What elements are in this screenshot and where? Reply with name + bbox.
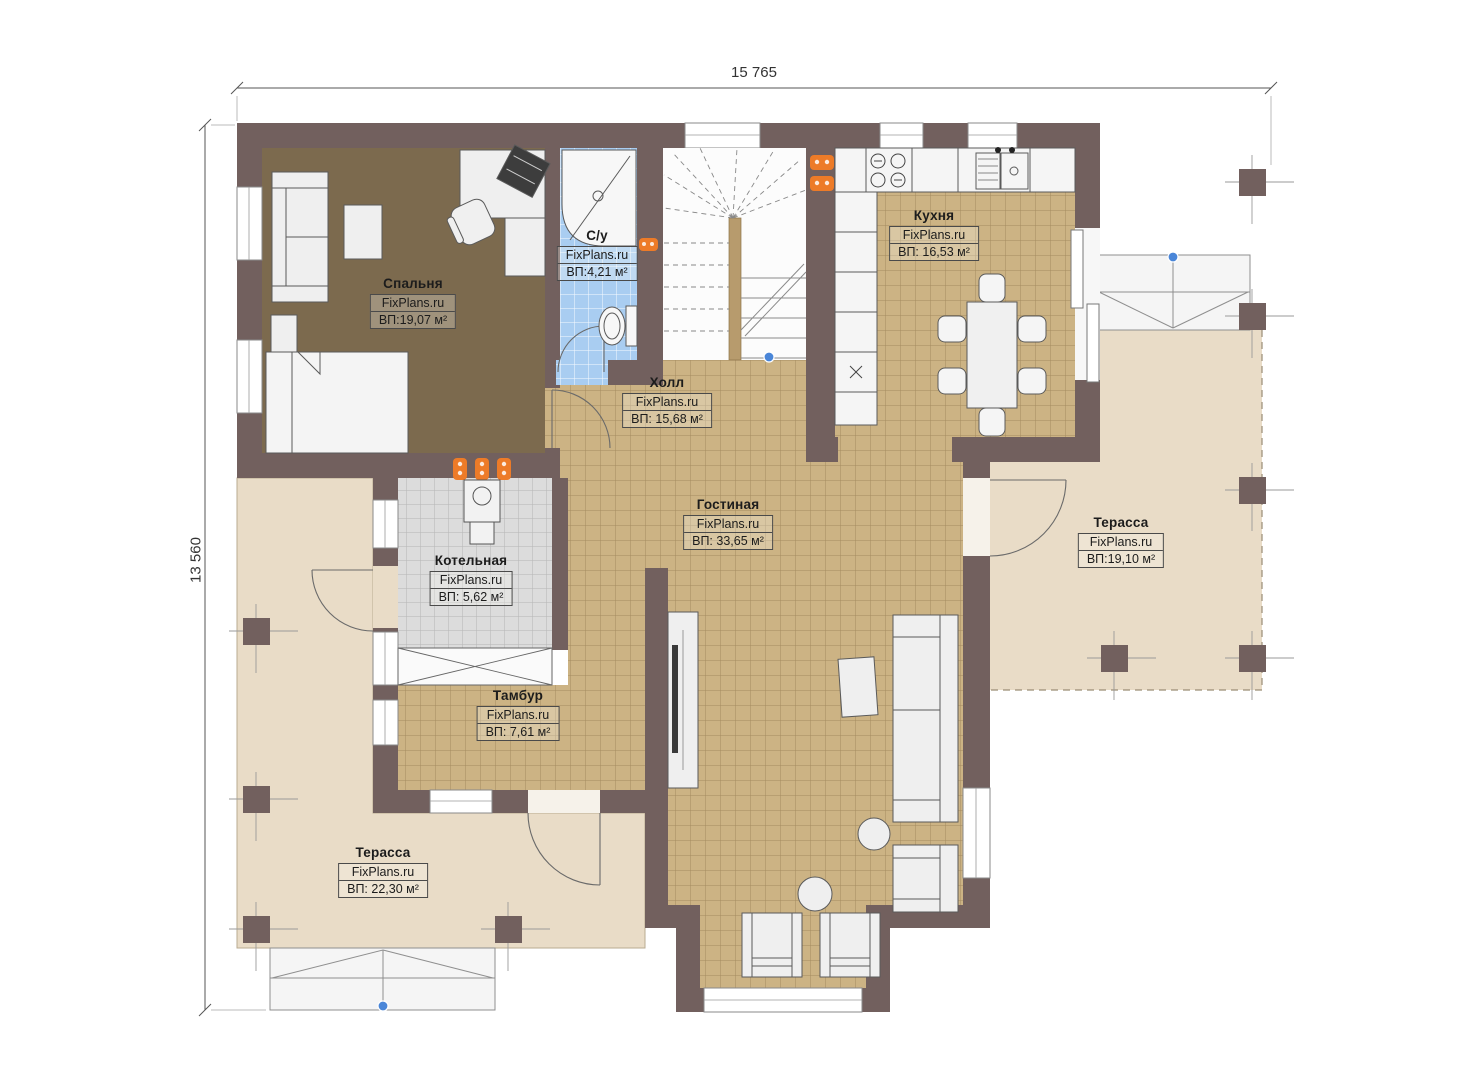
watermark: FixPlans.ru: [684, 516, 772, 533]
watermark: FixPlans.ru: [558, 247, 637, 264]
kitchen-counter-left: [835, 192, 877, 425]
room-label-kitchen: Кухня FixPlans.ru ВП: 16,53 м²: [889, 208, 979, 261]
vestibule-window-1: [373, 632, 398, 685]
floor-plan-page: 15 765 13 560 Спальня FixPlans.ru ВП:19,…: [0, 0, 1474, 1080]
coffee-table: [344, 205, 382, 259]
kitchen-window-2: [968, 123, 1017, 148]
corridor-floor: [568, 478, 645, 685]
room-label-terrace-right: Терасса FixPlans.ru ВП:19,10 м²: [1078, 515, 1164, 568]
room-label-living: Гостиная FixPlans.ru ВП: 33,65 м²: [683, 497, 773, 550]
corridor-living-opening: [645, 478, 668, 568]
toilet: [599, 306, 637, 346]
watermark: FixPlans.ru: [339, 864, 427, 881]
bedroom-window-upper: [237, 187, 262, 260]
sofa-small: [893, 845, 958, 912]
watermark: FixPlans.ru: [478, 707, 559, 724]
room-label-terrace-left: Терасса FixPlans.ru ВП: 22,30 м²: [338, 845, 428, 898]
room-label-hall: Холл FixPlans.ru ВП: 15,68 м²: [622, 375, 712, 428]
tv-stand: [668, 612, 698, 788]
watermark: FixPlans.ru: [431, 572, 512, 589]
kitchen-counter-top: [835, 148, 1075, 192]
wardrobe: [398, 648, 552, 685]
sofa-main: [893, 615, 958, 822]
sofa: [272, 172, 328, 302]
bedroom-window-lower: [237, 340, 262, 413]
steps-right-terrace: [1097, 255, 1250, 330]
vestibule-window-3: [430, 790, 492, 813]
room-label-bathroom: С/у FixPlans.ru ВП:4,21 м²: [557, 228, 638, 281]
living-window-right: [963, 788, 990, 878]
kitchen-sink: [976, 147, 1028, 189]
dimension-left: 13 560: [188, 537, 205, 583]
armchair-1: [742, 913, 802, 977]
armchair-2: [820, 913, 880, 977]
stair-window: [685, 123, 760, 148]
watermark: FixPlans.ru: [371, 295, 455, 312]
watermark: FixPlans.ru: [890, 227, 978, 244]
boiler-window: [373, 500, 398, 548]
vestibule-window-2: [373, 700, 398, 745]
round-table-1: [858, 818, 890, 850]
bed: [266, 352, 408, 453]
square-table: [838, 657, 878, 717]
watermark: FixPlans.ru: [623, 394, 711, 411]
kitchen-window-1: [880, 123, 923, 148]
room-label-boiler: Котельная FixPlans.ru ВП: 5,62 м²: [430, 553, 513, 606]
room-label-vestibule: Тамбур FixPlans.ru ВП: 7,61 м²: [477, 688, 560, 741]
round-table-2: [798, 877, 832, 911]
dimension-top: 15 765: [731, 64, 777, 81]
room-label-bedroom: Спальня FixPlans.ru ВП:19,07 м²: [370, 276, 456, 329]
kitchen-passage-floor: [838, 437, 952, 462]
staircase: [663, 148, 806, 360]
watermark: FixPlans.ru: [1079, 534, 1163, 551]
